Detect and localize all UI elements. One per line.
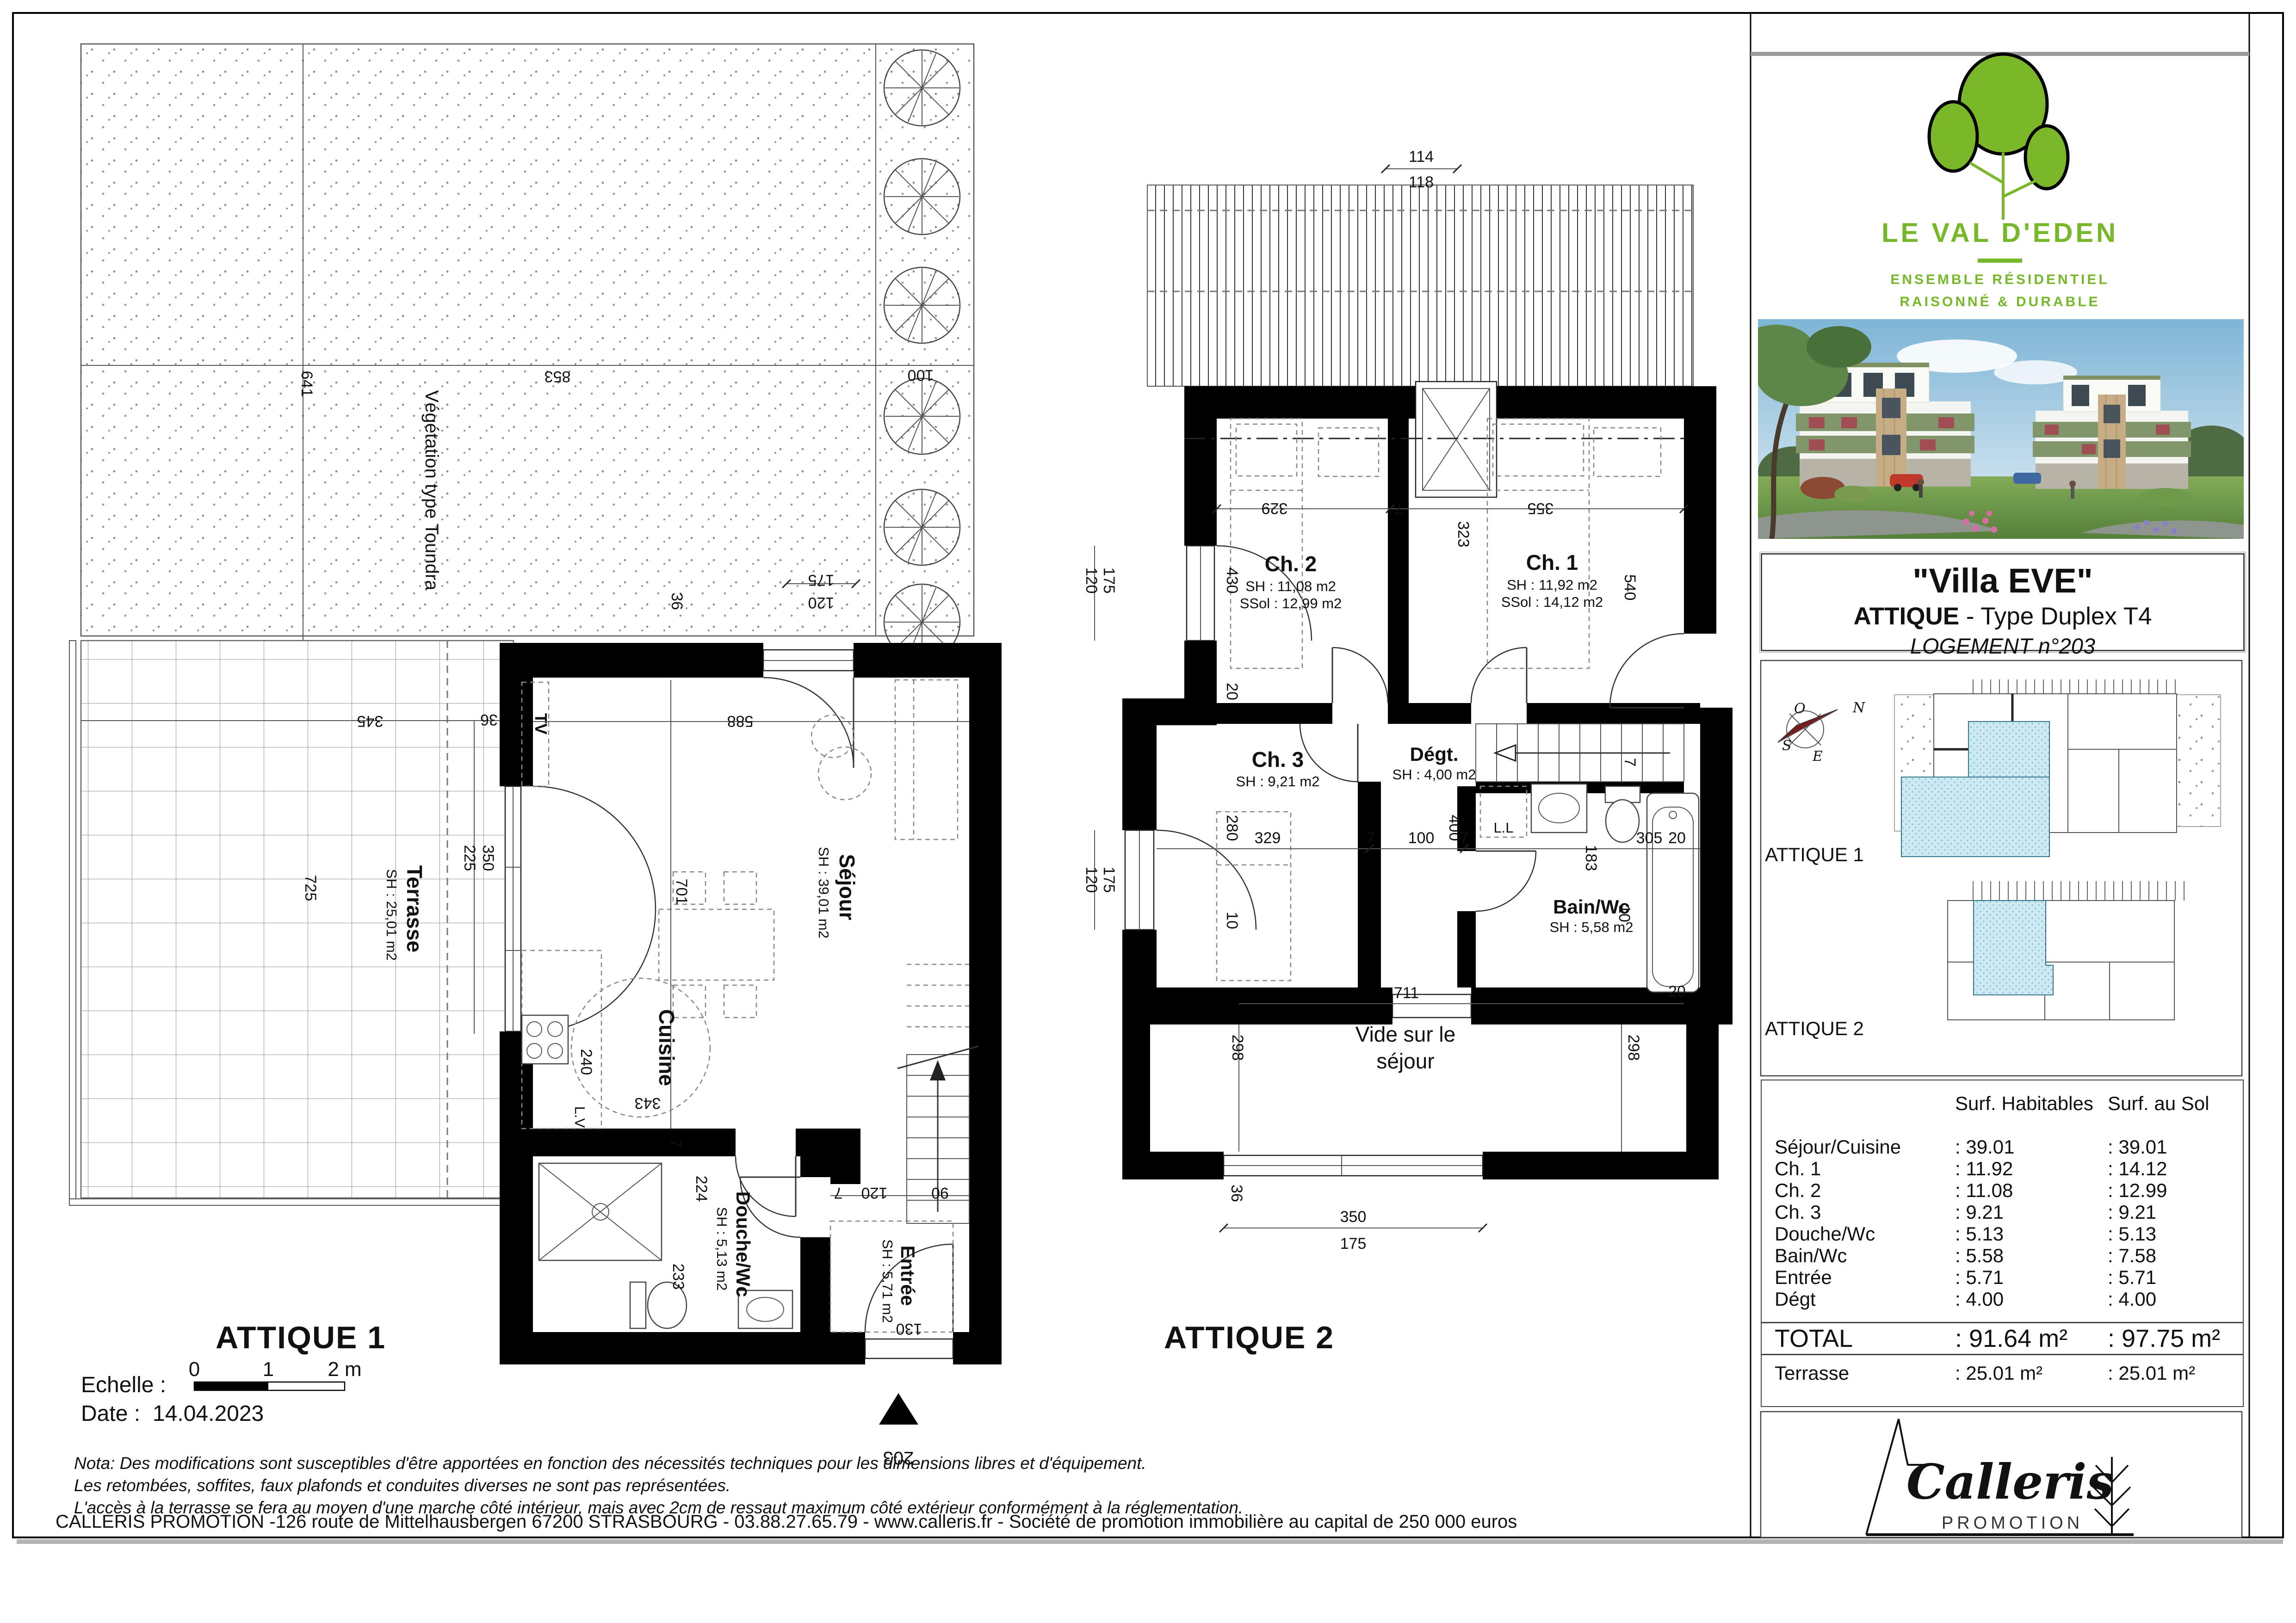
dim: 588 [727,712,754,730]
unit-level: ATTIQUE [1853,603,1959,630]
dim: 130 [896,1320,922,1338]
unit-type: ATTIQUE - Type Duplex T4 [1762,602,2243,630]
dim: 175 [1340,1235,1367,1253]
row-hab: : 11.92 [1955,1158,2108,1180]
lv-label: L.V [572,1106,588,1128]
dim: 641 [298,371,316,397]
stairs: 7 120 90 [830,964,978,1223]
table-row: Ch. 3: 9.21: 9.21 [1762,1201,2243,1223]
dim: 118 [1409,173,1434,191]
compass-s: S [1782,738,1792,754]
dim: 853 [545,368,571,385]
roof-hatch [1147,185,1693,386]
plan-attique-2: 114 118 [1083,148,1733,1355]
dim: 350 [1340,1208,1367,1226]
dim: 120 [1083,867,1100,893]
room-name: Dégt. [1410,743,1459,765]
scale-label: Echelle : [81,1373,166,1397]
dim: 114 [1409,148,1434,166]
row-sol: : 7.58 [2108,1245,2243,1267]
compass-e: E [1812,748,1823,765]
date-label: Date : [81,1401,140,1426]
dim: 7 [1460,829,1469,847]
room-area: SH : 11,92 m2 [1507,577,1597,593]
room-area: SH : 9,21 m2 [1236,773,1320,790]
room-area: SSol : 12,99 m2 [1240,595,1342,611]
room-area: SH : 25,01 m2 [384,869,400,961]
vide-label: Vide sur le [1355,1022,1456,1046]
dim: 20 [1668,983,1686,1000]
entrance-arrow-icon [879,1393,918,1425]
row-label: Dégt [1762,1288,1955,1310]
room-area: SH : 39,01 m2 [816,847,832,938]
row-sol: : 4.00 [2108,1288,2243,1310]
dim: 298 [1625,1035,1642,1061]
row-hab: : 5.71 [1955,1266,2108,1289]
calleris-logo: Calleris PROMOTION [1761,1412,2242,1537]
dim: 240 [577,1049,595,1075]
scale-tick: 2 m [328,1358,361,1381]
row-hab: : 5.13 [1955,1223,2108,1245]
dim: 343 [635,1094,661,1112]
total-sol: : 97.75 m² [2108,1324,2243,1353]
dim: 329 [1262,500,1288,517]
row-hab: : 4.00 [1955,1288,2108,1310]
scale-tick: 1 [263,1358,274,1381]
chambre-2: Ch. 2 SH : 11,08 m2 SSol : 12,99 m2 [1231,419,1379,668]
dim: 175 [1100,568,1118,594]
terrasse: Terrasse SH : 25,01 m2 345 350 225 36 72… [69,641,514,1205]
total-label: TOTAL [1762,1324,1955,1353]
dim: 100 [1408,829,1435,847]
plan1-title: ATTIQUE 1 [216,1320,386,1355]
dim: 701 [673,879,690,905]
dim: 430 [1223,568,1241,594]
vegetation-label: Végétation type Toundra [421,390,442,591]
room-area: SH : 11,08 m2 [1245,578,1336,594]
keyplan2-label: ATTIQUE 2 [1765,1018,1864,1039]
row-label: Bain/Wc [1762,1245,1955,1267]
row-label: Séjour/Cuisine [1762,1136,1955,1158]
room-area: SH : 5,13 m2 [714,1207,730,1291]
logo-text-block: LE VAL D'EDEN ENSEMBLE RÉSIDENTIEL RAISO… [1751,217,2249,310]
val-deden-logo-icon [1929,54,2068,220]
dim: 120 [861,1184,888,1202]
terrasse-label: Terrasse [1762,1362,1955,1384]
unit-number-line: LOGEMENT n°203 [1762,633,2243,659]
scale-tick: 0 [189,1358,200,1381]
unit-type-rest: - Type Duplex T4 [1959,603,2152,630]
dim: 20 [1223,683,1241,700]
row-hab: : 11.08 [1955,1179,2108,1202]
title-block: "Villa EVE" ATTIQUE - Type Duplex T4 LOG… [1761,553,2245,651]
promoter-address: CALLERIS PROMOTION -126 route de Mittelh… [56,1512,1739,1532]
dim: 10 [1615,905,1633,922]
project-subtitle-2: RAISONNÉ & DURABLE [1751,294,2249,310]
compass-o: O [1794,701,1806,717]
dim: 120 [808,594,835,611]
row-sol: : 14.12 [2108,1158,2243,1180]
row-label: Ch. 1 [1762,1158,1955,1180]
dim: 120 [1083,568,1100,594]
keyplan-box: N O S E ATTIQUE 1 ATT [1761,660,2242,1076]
promoter-name: Calleris [1906,1453,2114,1510]
room-area: SH : 5,71 m2 [879,1240,896,1323]
row-hab: : 9.21 [1955,1201,2108,1223]
dim: 175 [808,571,835,589]
dim: 7 [1395,500,1404,517]
dim: 355 [1528,500,1554,517]
room-name: Cuisine [655,1009,679,1086]
table-row: Ch. 2: 11.08: 12.99 [1762,1179,2243,1201]
dim: 175 [1100,867,1118,893]
dim: 100 [908,366,934,384]
tv-label: TV [532,713,551,734]
douche-wc: Douche/Wc SH : 5,13 m2 224 233 [539,1163,792,1328]
row-sol: : 9.21 [2108,1201,2243,1223]
dim: 36 [668,592,686,610]
dim: 540 [1621,574,1639,601]
dim: 711 [1394,984,1419,1002]
dim: 225 [461,845,478,871]
ll-label: L.L [1493,820,1513,836]
plan2-title: ATTIQUE 2 [1164,1320,1334,1355]
table-col1-header: Surf. Habitables [1955,1092,2108,1115]
table-row: Entrée: 5.71: 5.71 [1762,1266,2243,1288]
project-rendering [1739,319,2253,539]
dim: 350 [479,845,497,871]
row-sol: : 12.99 [2108,1179,2243,1202]
dim: 298 [1229,1035,1246,1061]
room-area: SSol : 14,12 m2 [1501,594,1603,610]
date-value: 14.04.2023 [153,1401,264,1426]
plan-attique-1: Végétation type Toundra 641 853 100 175 … [69,44,1002,1468]
row-hab: : 5.58 [1955,1245,2108,1267]
scale-block: Echelle : 0 1 2 m Date : 14.04.2023 [81,1358,362,1426]
project-subtitle-1: ENSEMBLE RÉSIDENTIEL [1751,272,2249,288]
dim: 183 [1582,845,1600,871]
total-hab: : 91.64 m² [1955,1324,2108,1353]
project-title: LE VAL D'EDEN [1751,217,2249,248]
dim: 224 [693,1176,710,1202]
dim: 90 [931,1184,949,1202]
surface-table: Surf. Habitables Surf. au Sol Séjour/Cui… [1761,1080,2244,1407]
chambre-3: Ch. 3 SH : 9,21 m2 280 10 [1217,747,1319,981]
dim: 323 [1454,521,1472,548]
dim: 7 [834,1184,843,1202]
stairs: 7 [1476,724,1684,782]
room-name: Ch. 1 [1526,550,1578,574]
dim: 280 [1223,815,1241,841]
table-terrasse-row: Terrasse : 25.01 m² : 25.01 m² [1762,1359,2243,1388]
dim: 233 [669,1264,687,1290]
dim: 7 [1621,758,1639,767]
table-row: Ch. 1: 11.92: 14.12 [1762,1158,2243,1179]
row-sol: : 39.01 [2108,1136,2243,1158]
table-row: Bain/Wc: 5.58: 7.58 [1762,1245,2243,1266]
room-name: Ch. 2 [1265,552,1317,576]
dim: 329 [1255,829,1281,847]
dim: 7 [1366,829,1375,847]
dim: 345 [357,712,384,730]
villa-name: "Villa EVE" [1762,561,2243,600]
plan-sheet: Végétation type Toundra 641 853 100 175 … [0,0,2296,1623]
table-row: Douche/Wc: 5.13: 5.13 [1762,1223,2243,1245]
terrasse-hab: : 25.01 m² [1955,1362,2108,1384]
dim: 36 [480,711,498,728]
row-label: Ch. 2 [1762,1179,1955,1202]
row-sol: : 5.13 [2108,1223,2243,1245]
dim: 20 [1668,829,1686,847]
row-hab: : 39.01 [1955,1136,2108,1158]
room-name: Ch. 3 [1252,747,1304,771]
table-row: Séjour/Cuisine: 39.01: 39.01 [1762,1136,2243,1158]
room-name: Douche/Wc [732,1191,754,1297]
bain-wc: L.L Bain/Wc SH : 5,58 m2 10 [1480,784,1699,992]
promoter-sub: PROMOTION [1942,1513,2083,1533]
dim: 36 [1228,1185,1245,1202]
table-row: Dégt: 4.00: 4.00 [1762,1288,2243,1310]
room-area: SH : 4,00 m2 [1392,766,1476,783]
nota-line-1: Nota: Des modifications sont susceptible… [74,1452,1721,1475]
table-total-row: TOTAL : 91.64 m² : 97.75 m² [1762,1322,2243,1355]
chambre-1: Ch. 1 SH : 11,92 m2 SSol : 14,12 m2 [1487,419,1661,668]
room-name: Terrasse [402,865,427,952]
dim: 305 [1636,829,1663,847]
nota-block: Nota: Des modifications sont susceptible… [74,1452,1721,1519]
dim: 7 [667,1139,685,1148]
terrasse-sol: : 25.01 m² [2108,1362,2243,1384]
vide-label: séjour [1376,1049,1434,1073]
compass-n: N [1852,700,1866,716]
row-label: Ch. 3 [1762,1201,1955,1223]
keyplan1-label: ATTIQUE 1 [1765,844,1864,865]
table-col2-header: Surf. au Sol [2108,1092,2243,1115]
nota-line-2: Les retombées, soffites, faux plafonds e… [74,1475,1721,1497]
room-name: Séjour [835,854,859,920]
row-label: Douche/Wc [1762,1223,1955,1245]
dim: 10 [1223,912,1241,929]
room-name: Entrée [897,1246,919,1306]
logo-divider [1978,259,2022,263]
row-sol: : 5.71 [2108,1266,2243,1289]
dim: 725 [302,875,319,901]
row-label: Entrée [1762,1266,1955,1289]
